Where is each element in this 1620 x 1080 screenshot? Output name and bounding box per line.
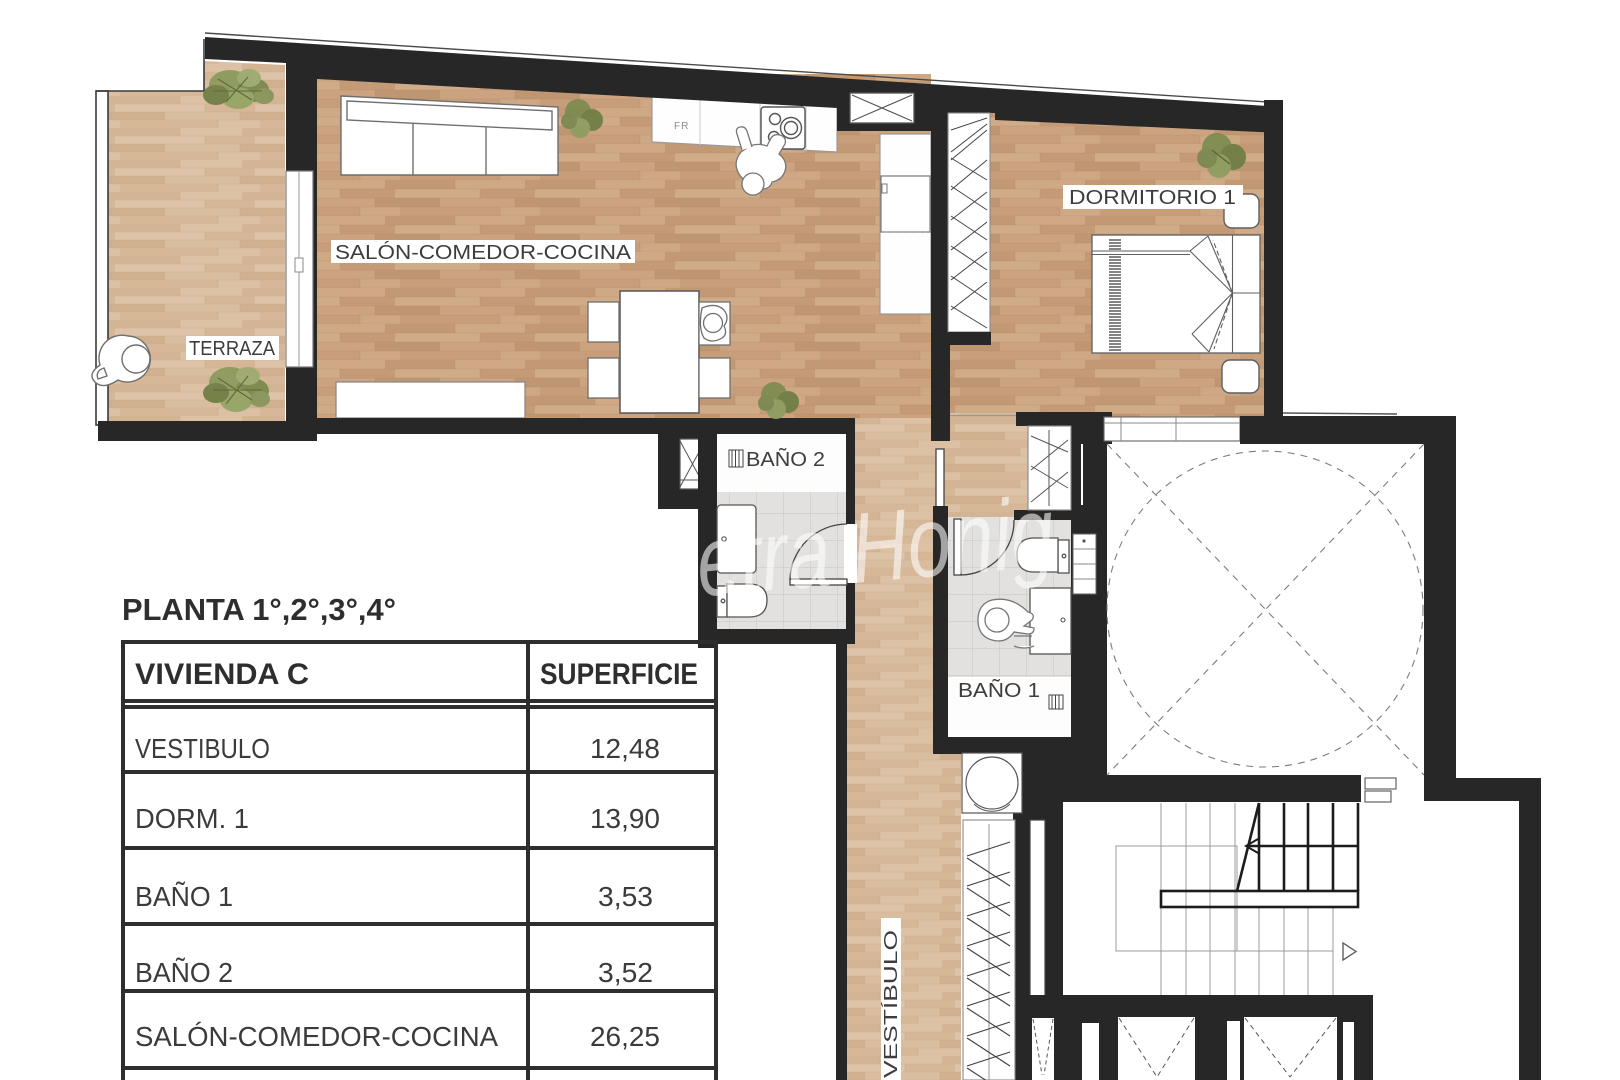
svg-text:VESTÍBULO: VESTÍBULO [881, 930, 901, 1078]
svg-text:12,48: 12,48 [590, 733, 660, 764]
svg-text:26,25: 26,25 [590, 1021, 660, 1052]
svg-text:BAÑO 1: BAÑO 1 [135, 881, 233, 912]
svg-text:BAÑO 2: BAÑO 2 [135, 957, 233, 988]
svg-text:BAÑO 2: BAÑO 2 [746, 447, 825, 471]
svg-text:VIVIENDA C: VIVIENDA C [135, 658, 309, 691]
svg-text:DORM. 1: DORM. 1 [135, 803, 249, 834]
svg-text:FR: FR [674, 121, 689, 132]
svg-text:TERRAZA: TERRAZA [189, 338, 276, 360]
svg-text:13,90: 13,90 [590, 803, 660, 834]
svg-text:BAÑO 1: BAÑO 1 [958, 678, 1040, 702]
svg-text:SALÓN-COMEDOR-COCINA: SALÓN-COMEDOR-COCINA [135, 1021, 498, 1052]
svg-text:3,52: 3,52 [598, 957, 653, 988]
svg-text:PLANTA 1°,2°,3°,4°: PLANTA 1°,2°,3°,4° [122, 592, 396, 627]
svg-text:SUPERFICIE: SUPERFICIE [540, 658, 698, 691]
svg-text:VESTIBULO: VESTIBULO [135, 733, 270, 764]
svg-text:3,53: 3,53 [598, 881, 653, 912]
svg-text:SALÓN-COMEDOR-COCINA: SALÓN-COMEDOR-COCINA [335, 241, 632, 264]
svg-text:DORMITORIO 1: DORMITORIO 1 [1069, 187, 1236, 209]
